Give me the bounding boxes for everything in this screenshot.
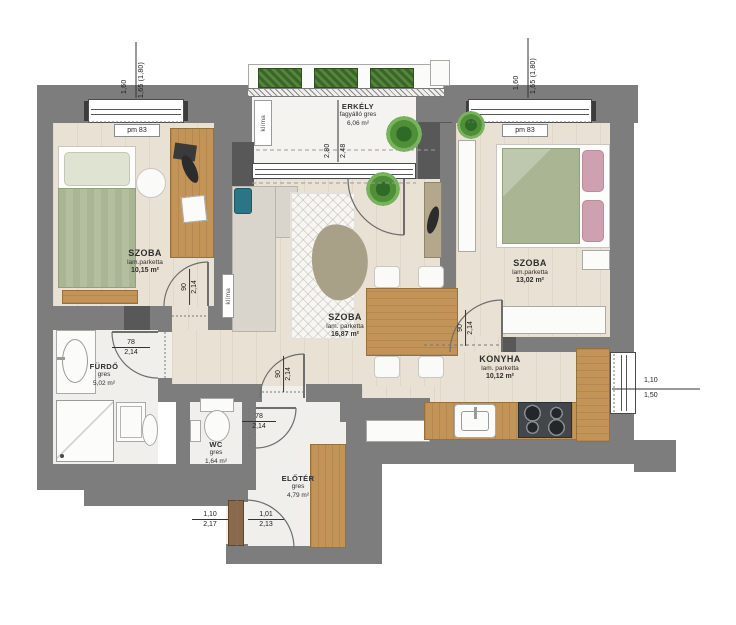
room-label-szoba1: SZOBA lam.parketta 10,15 m² <box>100 248 190 276</box>
balcony-railing <box>248 88 444 97</box>
window-glazing <box>471 109 589 115</box>
bed-pillow-pink <box>582 150 604 192</box>
room-label-wc: WC gres 1,64 m² <box>190 440 242 466</box>
dim-bottom: 2,14 <box>191 269 200 305</box>
window-type-label: pm 83 <box>114 124 160 137</box>
wall-bottom-right-step <box>634 440 676 472</box>
wall-entrance-upper-stub <box>226 464 248 502</box>
room-material: lam. parketta <box>295 323 395 331</box>
dim-bottom: 2,14 <box>242 422 276 431</box>
shower-drain <box>60 454 64 458</box>
dim-window-left-inner: 1,65 (1,80) <box>138 42 145 98</box>
wall-kitchen-left-chunk <box>340 398 430 422</box>
room-area: 13,02 m² <box>485 277 575 286</box>
wall-top-right <box>440 85 638 99</box>
hvac-unit-living: klíma <box>222 274 234 318</box>
kitchen-counter-right <box>576 348 610 442</box>
room-name: SZOBA <box>485 258 575 269</box>
wall-bottom-left-step <box>84 486 230 506</box>
dim-top: 1,10 <box>192 510 228 520</box>
room-label-furdo: FÜRDŐ gres 5,02 m² <box>62 362 146 388</box>
wall-left-outer <box>37 85 53 490</box>
wall-right-outer-upper <box>610 99 634 352</box>
dim-window-kitchen-top: 1,10 <box>644 377 658 384</box>
plant <box>457 111 485 139</box>
bench <box>62 290 138 304</box>
room-area: 4,79 m² <box>254 492 342 500</box>
room-name: WC <box>190 440 242 449</box>
plant <box>366 172 400 206</box>
paper-sheet <box>181 195 208 223</box>
dim-top: 90 <box>456 310 466 346</box>
room-label-nappali: SZOBA lam. parketta 16,87 m² <box>295 312 395 340</box>
room-material: gres <box>62 371 146 379</box>
dim-bottom: 2,13 <box>248 520 284 529</box>
dim-door-szoba1: 90 2,14 <box>180 269 200 305</box>
window-szoba2 <box>468 99 592 123</box>
dining-chair <box>374 266 400 288</box>
kitchen-sink <box>454 404 496 438</box>
dim-window-right-inner: 1,65 (1,80) <box>530 38 537 94</box>
wall-pier-szoba2-bottom <box>502 337 516 352</box>
sofa-pillow-teal <box>234 188 252 214</box>
room-material: lam.parketta <box>485 269 575 277</box>
room-material: lam.parketta <box>100 259 190 267</box>
room-material: gres <box>190 449 242 457</box>
room-name: KONYHA <box>440 354 560 365</box>
room-area: 16,87 m² <box>295 331 395 340</box>
room-name: SZOBA <box>100 248 190 259</box>
hvac-unit-balcony: klíma <box>254 100 272 146</box>
wardrobe <box>458 140 476 252</box>
room-label-eloter: ELŐTÉR gres 4,79 m² <box>254 474 342 500</box>
dim-top: 90 <box>274 356 284 392</box>
dim-door-bath: 78 2,14 <box>112 338 150 358</box>
room-name: ELŐTÉR <box>254 474 342 483</box>
room-label-szoba2: SZOBA lam.parketta 13,02 m² <box>485 258 575 286</box>
shower <box>56 400 114 462</box>
wall-pier-bath-top <box>124 306 150 330</box>
window-szoba1 <box>88 99 184 123</box>
dim-bottom: 2,14 <box>112 348 150 357</box>
bed-pillow-pink <box>582 200 604 242</box>
flower-box <box>314 68 358 88</box>
window-type-label: pm 83 <box>502 124 548 137</box>
sink-faucet <box>474 407 477 419</box>
wall-wc-left <box>176 398 190 465</box>
room-area: 1,64 m² <box>190 458 242 466</box>
dresser <box>502 306 606 334</box>
floor-nook <box>172 326 232 386</box>
nightstand <box>582 250 610 270</box>
wall-bath-right-upper <box>158 306 172 332</box>
basin-faucet <box>57 357 65 360</box>
dim-top: 78 <box>112 338 150 348</box>
window-type-text: pm 83 <box>127 127 146 134</box>
entrance-door-leaf <box>228 500 244 546</box>
room-label-konyha: KONYHA lam. parketta 10,12 m² <box>440 354 560 382</box>
room-name: SZOBA <box>295 312 395 323</box>
dim-bottom: 2,14 <box>285 356 294 392</box>
washing-machine <box>116 402 146 442</box>
window-kitchen <box>610 352 636 414</box>
flower-box <box>258 68 302 88</box>
room-area: 10,12 m² <box>440 373 560 382</box>
dim-entrance-opening: 1,10 2,17 <box>192 510 228 530</box>
window-glazing <box>91 109 181 115</box>
hvac-label: klíma <box>260 115 267 132</box>
cooktop <box>518 402 572 438</box>
window-glazing <box>621 355 627 411</box>
room-name: FÜRDŐ <box>62 362 146 371</box>
room-material: lam. parketta <box>440 365 560 373</box>
dim-bottom: 2,17 <box>192 520 228 529</box>
toilet-bowl <box>204 410 230 442</box>
dim-balcony-inner: 2,48 <box>340 108 347 158</box>
bed-pillow <box>64 152 130 186</box>
dim-balcony-outer: 2,80 <box>324 108 331 158</box>
balcony-ledge-block <box>430 60 450 86</box>
washer-lid <box>120 406 142 438</box>
wall-wc-right <box>242 398 256 468</box>
hvac-label: klíma <box>225 288 232 305</box>
room-area: 10,15 m² <box>100 267 190 276</box>
dim-window-right-outer: 1,60 <box>513 44 520 90</box>
dim-door-eloter: 90 2,14 <box>274 356 294 392</box>
dim-top: 1,01 <box>248 510 284 520</box>
dim-window-kitchen-bottom: 1,50 <box>644 392 658 399</box>
window-type-text: pm 83 <box>515 127 534 134</box>
dining-chair <box>418 266 444 288</box>
floor-plan: klíma klíma <box>0 0 736 625</box>
laundry-basket <box>142 414 158 446</box>
floor-bath-door-strip <box>158 332 172 378</box>
flower-box <box>370 68 414 88</box>
office-chair <box>136 168 166 198</box>
bed-duvet <box>502 148 580 244</box>
dim-window-left-outer: 1,60 <box>121 48 128 94</box>
dining-chair <box>374 356 400 378</box>
wall-right-outer-lower <box>610 414 634 464</box>
dim-entrance-door: 1,01 2,13 <box>248 510 284 530</box>
dim-top: 90 <box>180 269 190 305</box>
kitchen-cabinet-white <box>366 420 430 442</box>
dim-door-wc: 78 2,14 <box>242 412 276 432</box>
dim-top: 78 <box>242 412 276 422</box>
dim-bottom: 2,14 <box>467 310 476 346</box>
room-area: 5,02 m² <box>62 380 146 388</box>
wc-hand-basin <box>190 420 201 442</box>
room-material: gres <box>254 483 342 491</box>
dim-door-szoba2: 90 2,14 <box>456 310 476 346</box>
